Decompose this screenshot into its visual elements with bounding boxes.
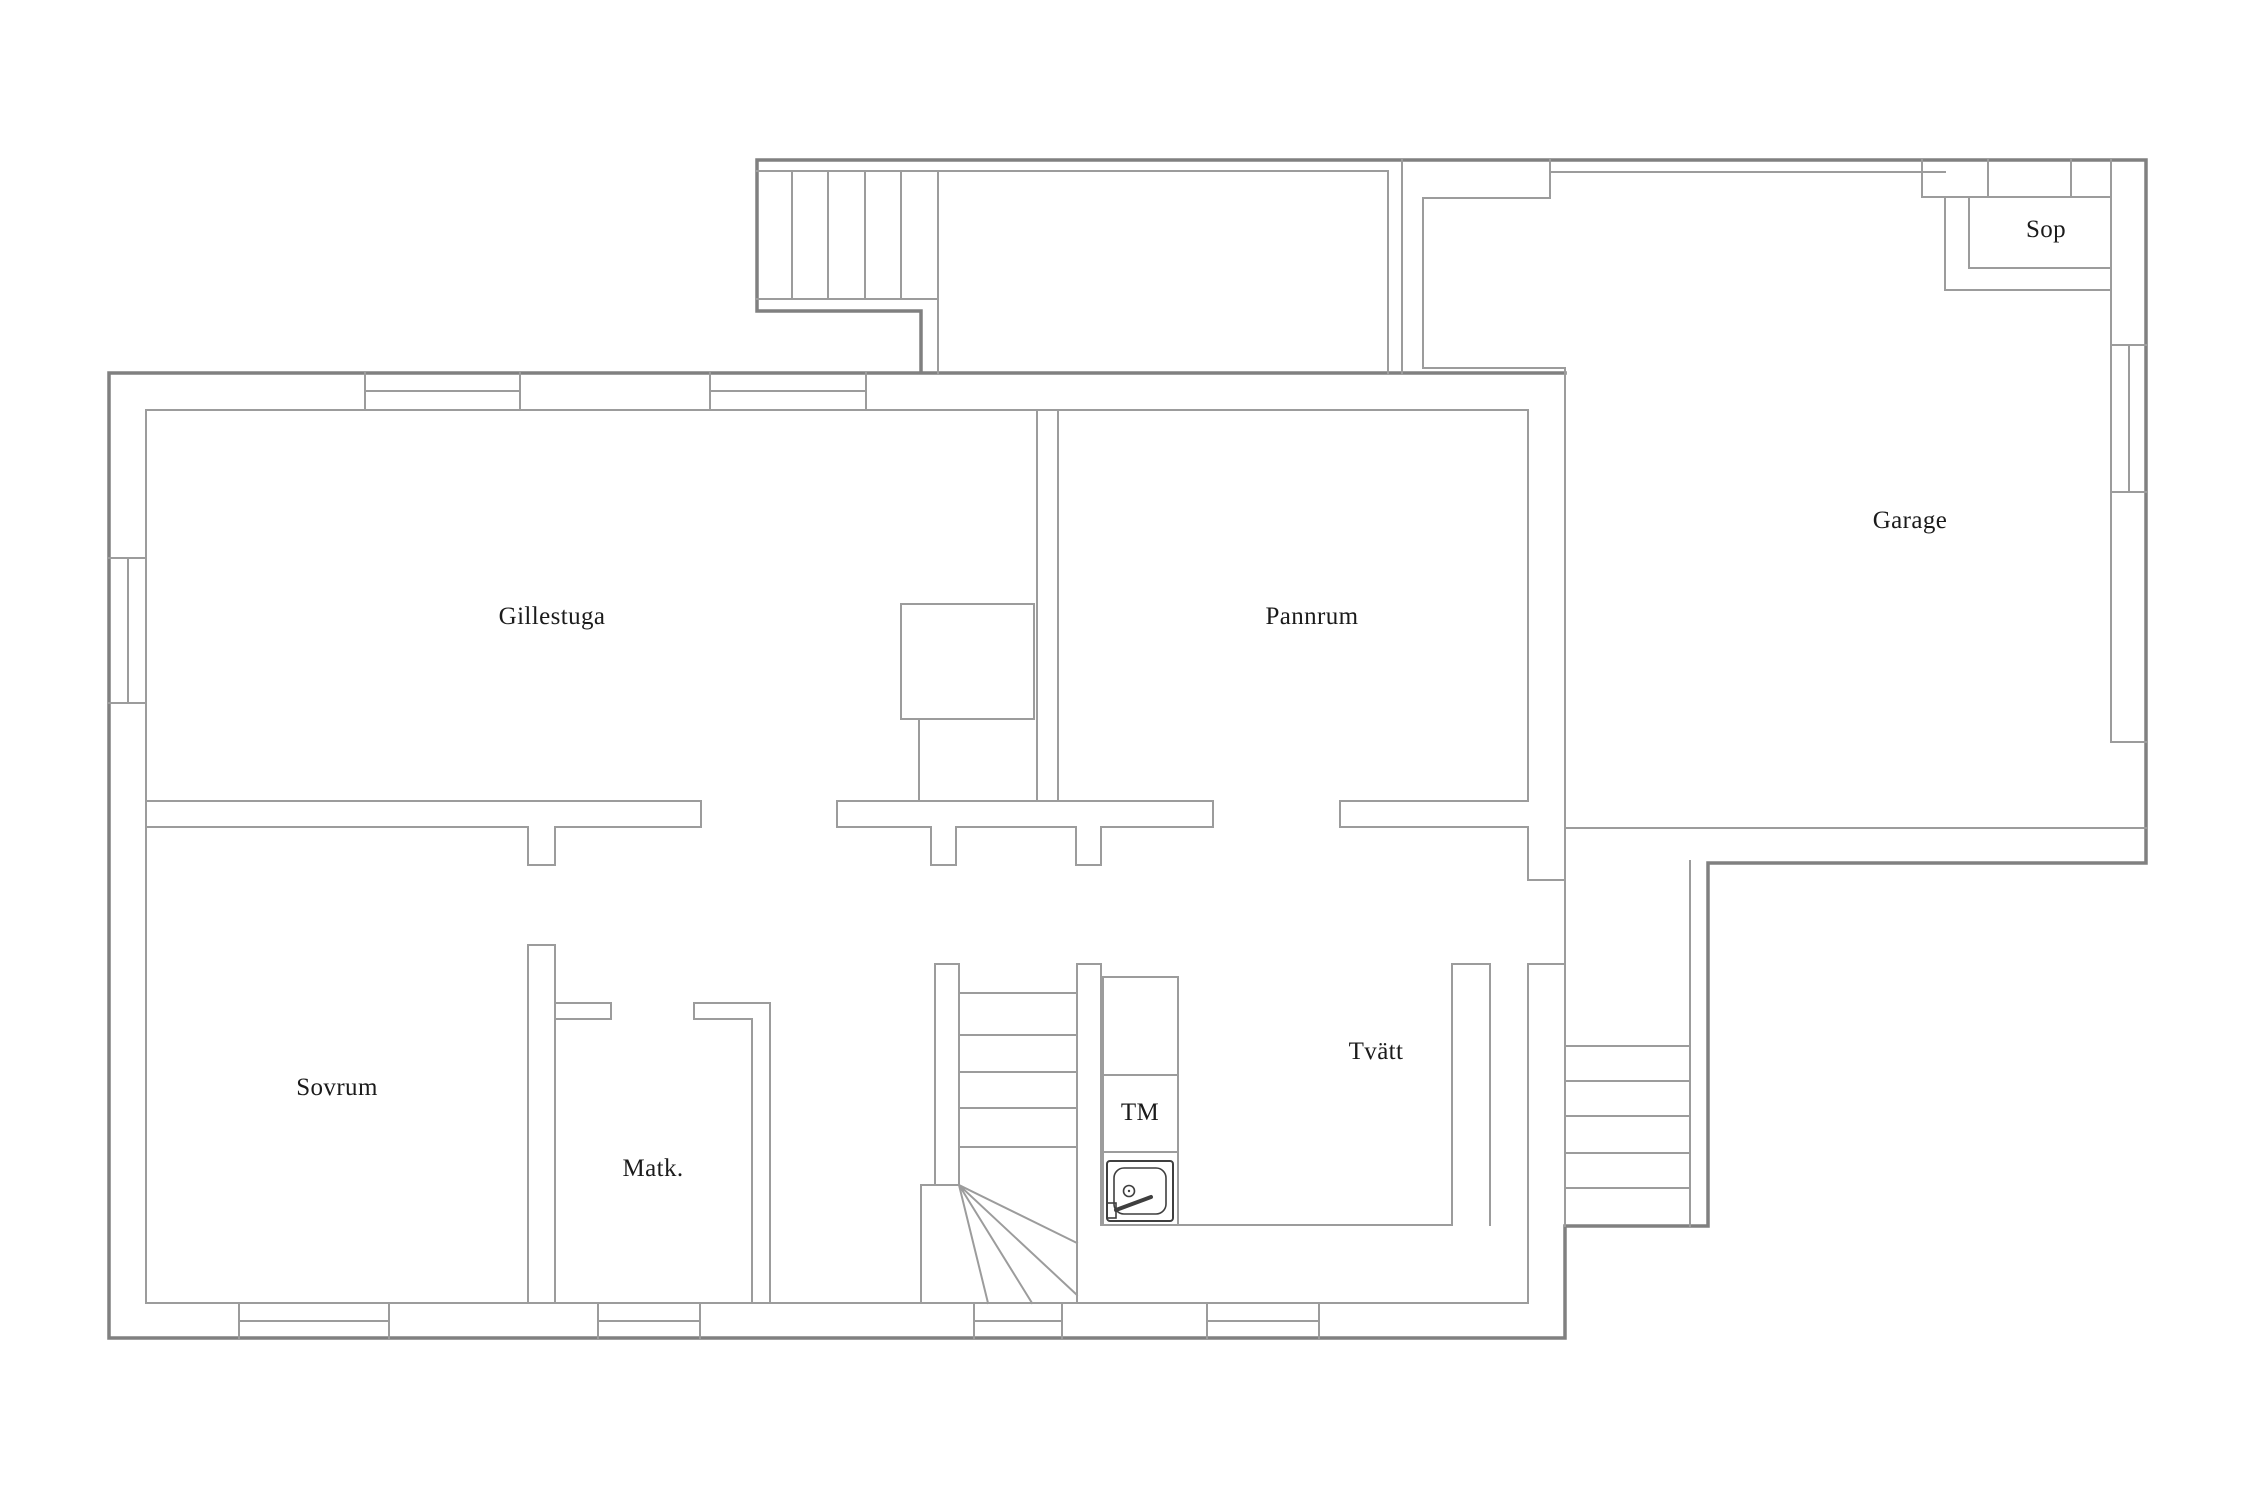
floor-plan-drawing: [0, 0, 2250, 1500]
floor-plan: Gillestuga Pannrum Garage Sop Sovrum Mat…: [0, 0, 2250, 1500]
room-label-tm: TM: [1121, 1099, 1159, 1127]
room-label-pannrum: Pannrum: [1265, 603, 1358, 631]
room-label-gillestuga: Gillestuga: [499, 603, 606, 631]
room-label-sovrum: Sovrum: [296, 1074, 378, 1102]
room-label-matk: Matk.: [622, 1155, 683, 1183]
room-label-sop: Sop: [2026, 216, 2066, 244]
room-label-tvatt: Tvätt: [1349, 1038, 1404, 1066]
plan-background: [0, 0, 2250, 1500]
room-label-garage: Garage: [1873, 507, 1948, 535]
